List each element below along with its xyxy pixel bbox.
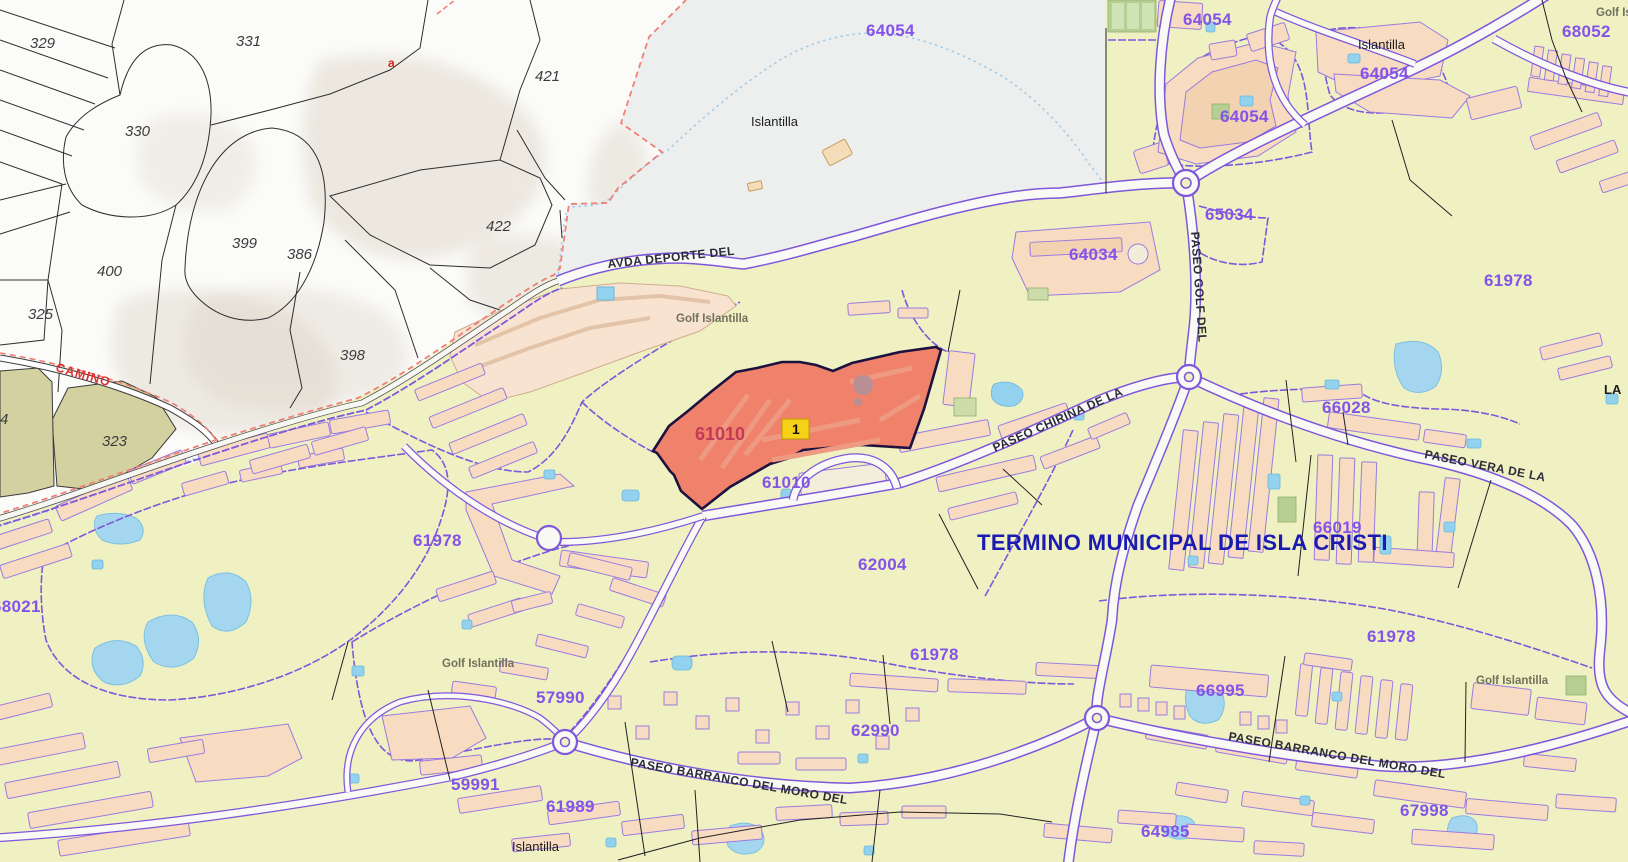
svg-text:4: 4 [0,411,8,428]
svg-text:386: 386 [287,246,313,263]
svg-text:64054: 64054 [1220,107,1269,126]
svg-text:61978: 61978 [413,531,462,550]
svg-text:66028: 66028 [1322,398,1371,417]
svg-text:399: 399 [232,235,258,252]
svg-text:68052: 68052 [1562,22,1611,41]
svg-text:a: a [388,56,395,70]
svg-text:Islantilla: Islantilla [512,839,560,854]
svg-text:64054: 64054 [866,21,915,40]
svg-text:331: 331 [236,33,261,50]
svg-text:61978: 61978 [1367,627,1416,646]
svg-text:330: 330 [125,123,151,140]
svg-text:Golf Islantilla: Golf Islantilla [442,658,515,670]
svg-text:64034: 64034 [1069,245,1118,264]
svg-text:66995: 66995 [1196,681,1245,700]
svg-text:59991: 59991 [451,775,500,794]
svg-text:68021: 68021 [0,597,41,616]
svg-text:325: 325 [28,306,54,323]
svg-text:61010: 61010 [695,424,745,444]
svg-text:64054: 64054 [1183,10,1232,29]
svg-text:323: 323 [102,433,128,450]
svg-text:Islantilla: Islantilla [751,114,799,129]
svg-text:57990: 57990 [536,688,585,707]
svg-text:67998: 67998 [1400,801,1449,820]
svg-text:LA: LA [1604,382,1622,397]
svg-text:400: 400 [97,263,123,280]
svg-text:398: 398 [340,347,366,364]
svg-text:66019: 66019 [1313,518,1362,537]
svg-text:Golf Islantilla: Golf Islantilla [1476,675,1549,687]
svg-text:62990: 62990 [851,721,900,740]
svg-text:1: 1 [792,421,800,437]
svg-text:65034: 65034 [1205,205,1254,224]
svg-text:Golf Islantilla: Golf Islantilla [676,313,749,325]
svg-text:422: 422 [486,218,512,235]
svg-text:Golf Is: Golf Is [1596,7,1628,19]
svg-text:64985: 64985 [1141,822,1190,841]
svg-text:61010: 61010 [762,473,811,492]
svg-text:61978: 61978 [1484,271,1533,290]
svg-text:61978: 61978 [910,645,959,664]
svg-text:Islantilla: Islantilla [1358,37,1406,52]
svg-text:62004: 62004 [858,555,907,574]
svg-text:421: 421 [535,68,560,85]
svg-text:61989: 61989 [546,797,595,816]
svg-text:64054: 64054 [1360,64,1409,83]
svg-text:329: 329 [30,35,56,52]
